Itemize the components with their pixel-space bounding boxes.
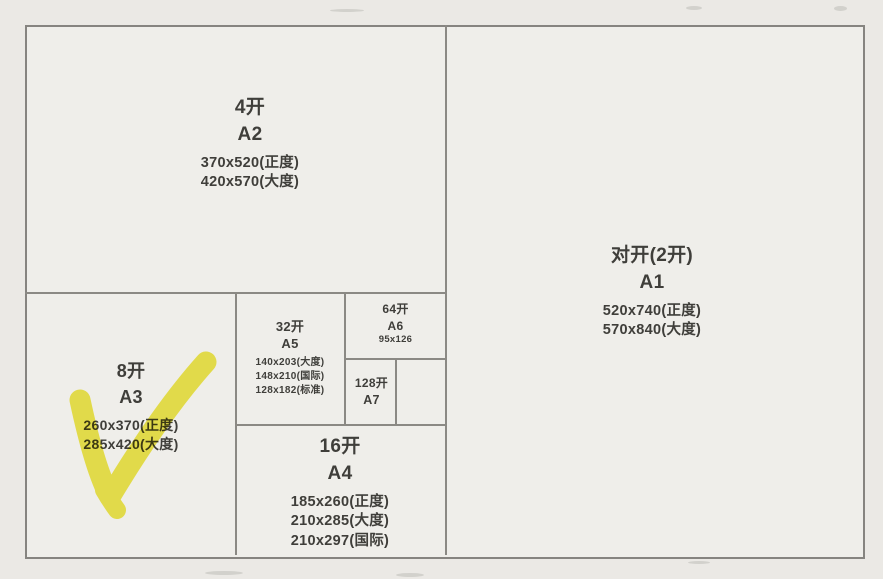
series-label: A7: [347, 392, 396, 409]
kai-label: 4开: [100, 94, 400, 121]
size-line: 420x570(大度): [100, 173, 400, 192]
smudge-mark: [330, 9, 364, 12]
size-line: 260x370(正度): [31, 416, 231, 435]
series-label: A6: [346, 318, 445, 335]
size-line: 185x260(正度): [240, 493, 440, 512]
size-line: 520x740(正度): [502, 302, 802, 321]
section-duikai-a1: 对开(2开) A1 520x740(正度) 570x840(大度): [502, 242, 802, 341]
section-4kai-a2: 4开 A2 370x520(正度) 420x570(大度): [100, 94, 400, 193]
section-128kai-a7: 128开 A7: [347, 375, 396, 409]
section-64kai-a6: 64开 A6 95x126: [346, 301, 445, 346]
size-line: 370x520(正度): [100, 154, 400, 173]
size-line: 210x297(国际): [240, 532, 440, 551]
kai-label: 对开(2开): [502, 242, 802, 269]
smudge-mark: [686, 6, 702, 10]
divider-main-vertical: [445, 25, 447, 555]
size-line: 148x210(国际): [238, 370, 342, 384]
divider-a4-top: [235, 424, 447, 426]
size-line: 210x285(大度): [240, 512, 440, 531]
size-line: 128x182(标准): [238, 384, 342, 398]
series-label: A3: [31, 384, 231, 410]
section-32kai-a5: 32开 A5 140x203(大度) 148x210(国际) 128x182(标…: [238, 318, 342, 397]
smudge-mark: [396, 573, 424, 577]
series-label: A4: [240, 460, 440, 487]
kai-label: 64开: [346, 301, 445, 318]
kai-label: 16开: [240, 433, 440, 460]
smudge-mark: [205, 571, 243, 575]
section-16kai-a4: 16开 A4 185x260(正度) 210x285(大度) 210x297(国…: [240, 433, 440, 551]
paper-size-diagram: 4开 A2 370x520(正度) 420x570(大度) 对开(2开) A1 …: [0, 0, 883, 579]
series-label: A1: [502, 269, 802, 296]
smudge-mark: [688, 561, 710, 564]
series-label: A5: [238, 335, 342, 352]
smudge-mark: [834, 6, 847, 11]
kai-label: 32开: [238, 318, 342, 335]
size-line: 285x420(大度): [31, 435, 231, 454]
section-8kai-a3: 8开 A3 260x370(正度) 285x420(大度): [31, 358, 231, 453]
series-label: A2: [100, 121, 400, 148]
kai-label: 8开: [31, 358, 231, 384]
size-line: 95x126: [346, 334, 445, 346]
size-line: 140x203(大度): [238, 356, 342, 370]
size-line: 570x840(大度): [502, 321, 802, 340]
kai-label: 128开: [347, 375, 396, 392]
